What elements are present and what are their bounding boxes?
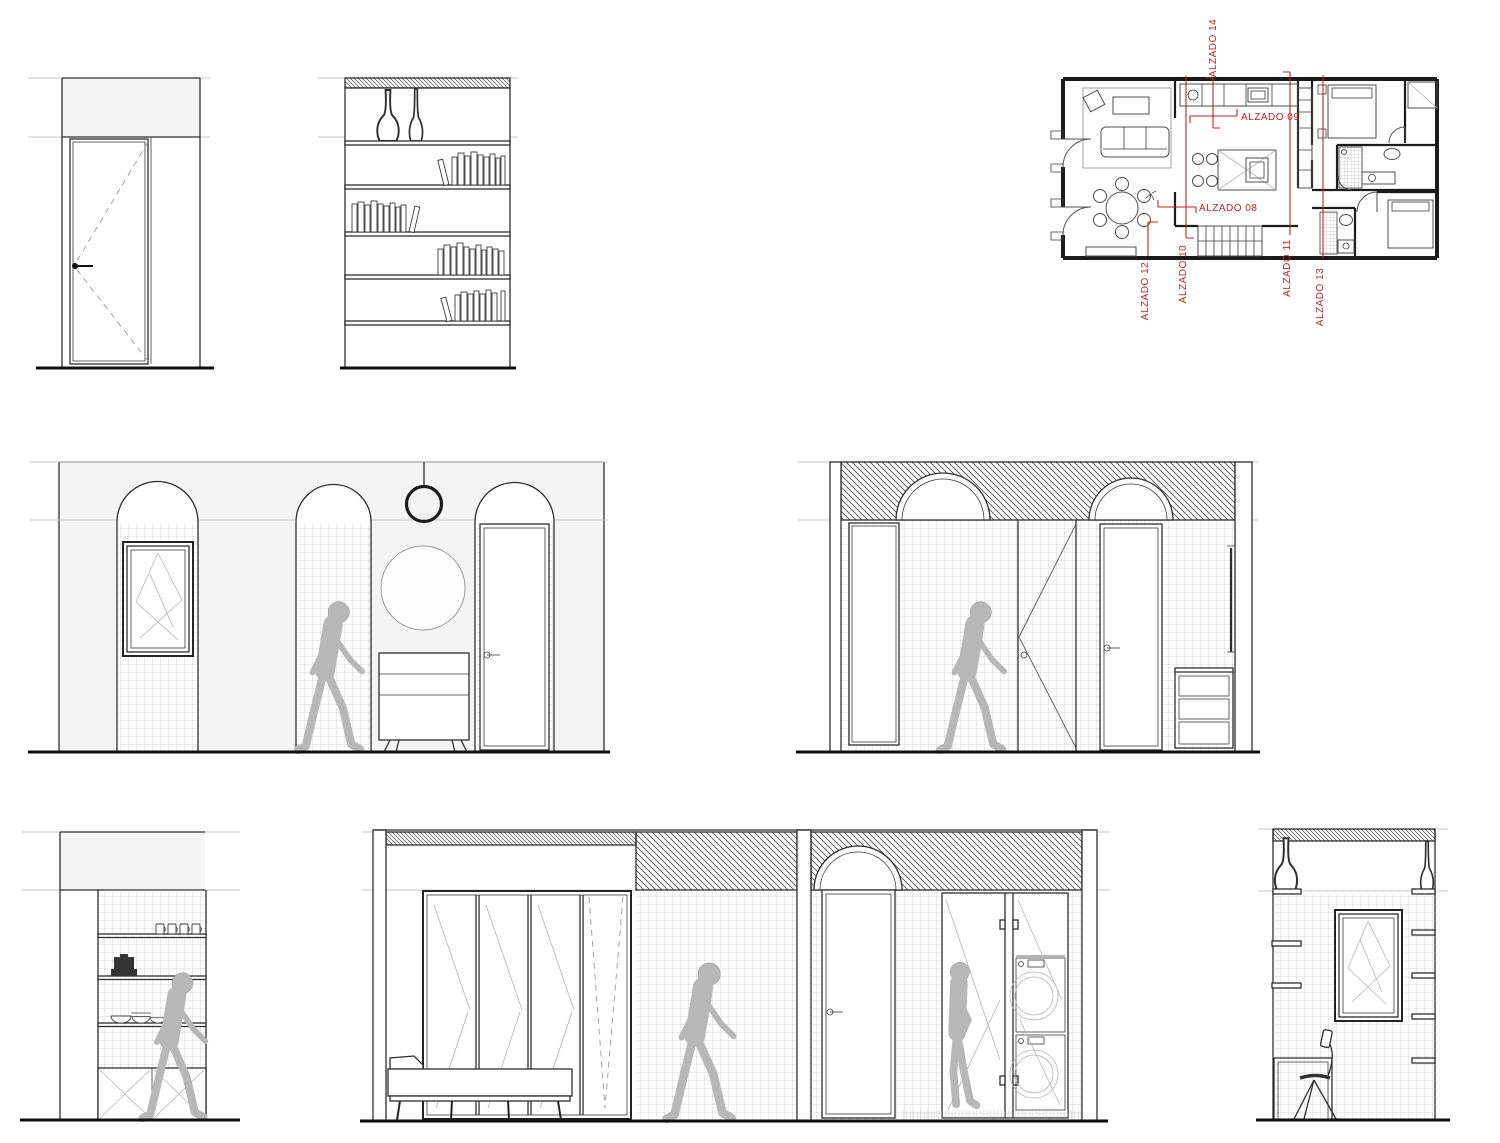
- ceiling-hatch-band: [345, 78, 510, 88]
- ceiling-hatch-band: [841, 462, 1235, 520]
- alzado-13-label: ALZADO 13: [1315, 268, 1326, 326]
- alzado-11-line: [1283, 72, 1290, 235]
- alzado-12-line: [1148, 222, 1158, 256]
- bed-2: [1388, 200, 1433, 248]
- door-swing: [1357, 192, 1377, 212]
- floor-plan: ALZADO 14 ALZADO 09 ALZADO 08 ALZADO 12 …: [1051, 19, 1437, 326]
- balcony-door-swings: [1063, 139, 1091, 235]
- chest-of-drawers: [379, 653, 469, 752]
- hatch-band-right: [811, 832, 1082, 890]
- bookshelf-detail-elevation: [318, 78, 518, 368]
- door-leaf: [70, 137, 151, 364]
- tall-panel: [849, 523, 899, 745]
- alzado-09-label: ALZADO 09: [1241, 112, 1299, 123]
- sheet-canvas: ALZADO 14 ALZADO 09 ALZADO 08 ALZADO 12 …: [0, 0, 1500, 1143]
- beam-hatch-strip: [386, 832, 636, 845]
- tall-units: [1298, 88, 1312, 188]
- white-door: [1100, 524, 1162, 750]
- alzado-11-label: ALZADO 11: [1282, 239, 1293, 297]
- alzado-10-label: ALZADO 10: [1178, 245, 1189, 303]
- arched-niche-door: [475, 483, 554, 753]
- hinge: [1000, 920, 1005, 929]
- arched-hall-elevation: [28, 462, 610, 752]
- toilet-2: [1340, 215, 1353, 226]
- alzado-08-line: [1158, 200, 1196, 213]
- round-mirror: [381, 546, 465, 630]
- sink-2: [1338, 240, 1354, 253]
- dining-table: [1094, 178, 1151, 239]
- door-swing: [1389, 127, 1405, 143]
- plan-symbol: [1146, 191, 1156, 200]
- tile-skirting: [903, 1110, 1082, 1121]
- ceiling-hatch-strip: [1273, 829, 1435, 841]
- bedroom-2: [1357, 192, 1433, 248]
- window: [123, 542, 193, 656]
- tiled-wall-doors-elevation: [796, 462, 1260, 752]
- drawing-sheet: ALZADO 14 ALZADO 09 ALZADO 08 ALZADO 12 …: [0, 0, 1500, 1143]
- sink: [1188, 90, 1198, 100]
- coffee-machine: [111, 954, 137, 976]
- bathroom-1: [1338, 147, 1400, 190]
- door-detail-elevation: [28, 78, 214, 368]
- coffee-table: [1113, 97, 1149, 114]
- island-stools: [1193, 154, 1218, 187]
- toilet-1: [1384, 149, 1400, 160]
- hinge: [1013, 920, 1018, 929]
- arched-niche-person: [296, 485, 371, 753]
- hatch-band-left: [636, 832, 797, 890]
- wall-post-left: [373, 830, 386, 1121]
- hinge: [1000, 1076, 1005, 1085]
- kitchen-niche-elevation: [20, 832, 240, 1120]
- bed-1: [1328, 85, 1376, 138]
- armchair: [1083, 90, 1105, 112]
- desk-window-elevation: [1256, 829, 1450, 1120]
- alzado-14-line: [1206, 78, 1220, 128]
- vanity-1: [1362, 172, 1395, 184]
- alzado-14-label: ALZADO 14: [1208, 19, 1219, 77]
- alzado-08-label: ALZADO 08: [1199, 203, 1257, 214]
- bulkhead: [60, 832, 205, 890]
- wall-post-middle: [797, 830, 811, 1121]
- stairs: [1198, 226, 1262, 256]
- bathroom-2: [1320, 212, 1354, 254]
- sideboard: [1086, 247, 1136, 256]
- shower-1: [1339, 147, 1362, 188]
- wall-post-right: [1235, 462, 1252, 752]
- wall-post-left: [830, 462, 841, 752]
- door-leaf: [480, 524, 549, 750]
- living-room-furniture: [1083, 88, 1171, 256]
- arched-niche-window: [117, 482, 198, 752]
- kitchen: [1180, 84, 1312, 190]
- laundry-closet: [942, 893, 1068, 1118]
- drawer-cabinet: [1175, 668, 1233, 748]
- sofa: [1101, 127, 1169, 157]
- kitchen-island: [1218, 150, 1276, 190]
- arched-door: [822, 890, 895, 1118]
- bedroom-1: [1318, 82, 1437, 143]
- transom-panel: [62, 78, 200, 137]
- vase-ledge: [1273, 838, 1435, 894]
- glazed-partition-laundry-elevation: [360, 830, 1110, 1121]
- alzado-12-label: ALZADO 12: [1140, 262, 1151, 320]
- window: [1335, 910, 1402, 1021]
- wall-post-right: [1082, 830, 1097, 1121]
